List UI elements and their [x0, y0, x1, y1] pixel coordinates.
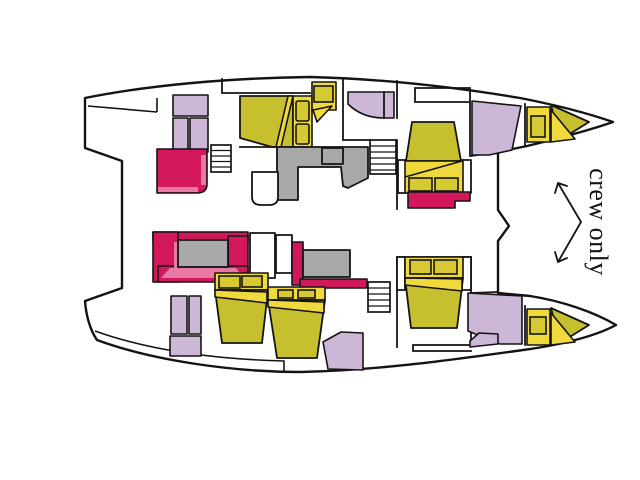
- wardrobe-panel: [190, 118, 208, 152]
- pillow: [296, 124, 309, 144]
- sofa-highlight: [158, 187, 198, 192]
- pillow: [435, 178, 458, 191]
- stairs: [368, 282, 390, 312]
- pillow: [434, 260, 457, 274]
- pillow: [298, 290, 315, 298]
- pillow: [242, 276, 262, 287]
- wardrobe-panel: [170, 336, 201, 356]
- wardrobe-aft-bottom: [170, 296, 201, 356]
- pillow: [410, 260, 431, 274]
- bed-body: [406, 122, 461, 161]
- wardrobe-panel: [173, 95, 208, 116]
- pillow: [296, 101, 309, 121]
- wardrobe-panel: [171, 296, 187, 334]
- crew-arrows: [555, 183, 581, 262]
- sofa: [157, 149, 207, 193]
- pillow: [409, 178, 432, 191]
- stairs-fwd-top: [370, 140, 396, 174]
- bench-cushion: [314, 86, 333, 102]
- bed-headboard: [268, 287, 325, 300]
- crew-only-label: crew only: [584, 168, 613, 276]
- pillow: [278, 290, 293, 298]
- stairs-fwd-bottom: [368, 282, 390, 312]
- stairs-aft-top: [211, 145, 231, 172]
- pillow: [219, 276, 240, 288]
- catamaran-floorplan: crew only: [0, 0, 640, 480]
- wardrobe-panel: [189, 296, 201, 334]
- bed-rail: [397, 257, 405, 290]
- wardrobe-aft-top: [173, 95, 208, 152]
- stairs: [211, 145, 231, 172]
- cabinet: [276, 235, 292, 273]
- pillow: [530, 317, 546, 334]
- pillow: [531, 116, 545, 137]
- counter-pod: [252, 172, 278, 205]
- cockpit-sofa-top: [157, 149, 207, 193]
- galley-sink: [322, 148, 343, 164]
- bathroom-fwd-bottom: [468, 293, 522, 347]
- crew-annotation: crew only: [555, 168, 613, 276]
- stairs: [370, 140, 396, 174]
- sofa-highlight: [201, 155, 206, 185]
- saloon-table: [178, 240, 228, 267]
- bed-aft-1: [215, 273, 268, 343]
- cabinet: [250, 233, 275, 278]
- floorplan-svg: crew only: [0, 0, 640, 480]
- wardrobe-panel: [173, 118, 188, 152]
- nav-desk: [303, 250, 350, 277]
- bed-aft-2: [268, 287, 325, 358]
